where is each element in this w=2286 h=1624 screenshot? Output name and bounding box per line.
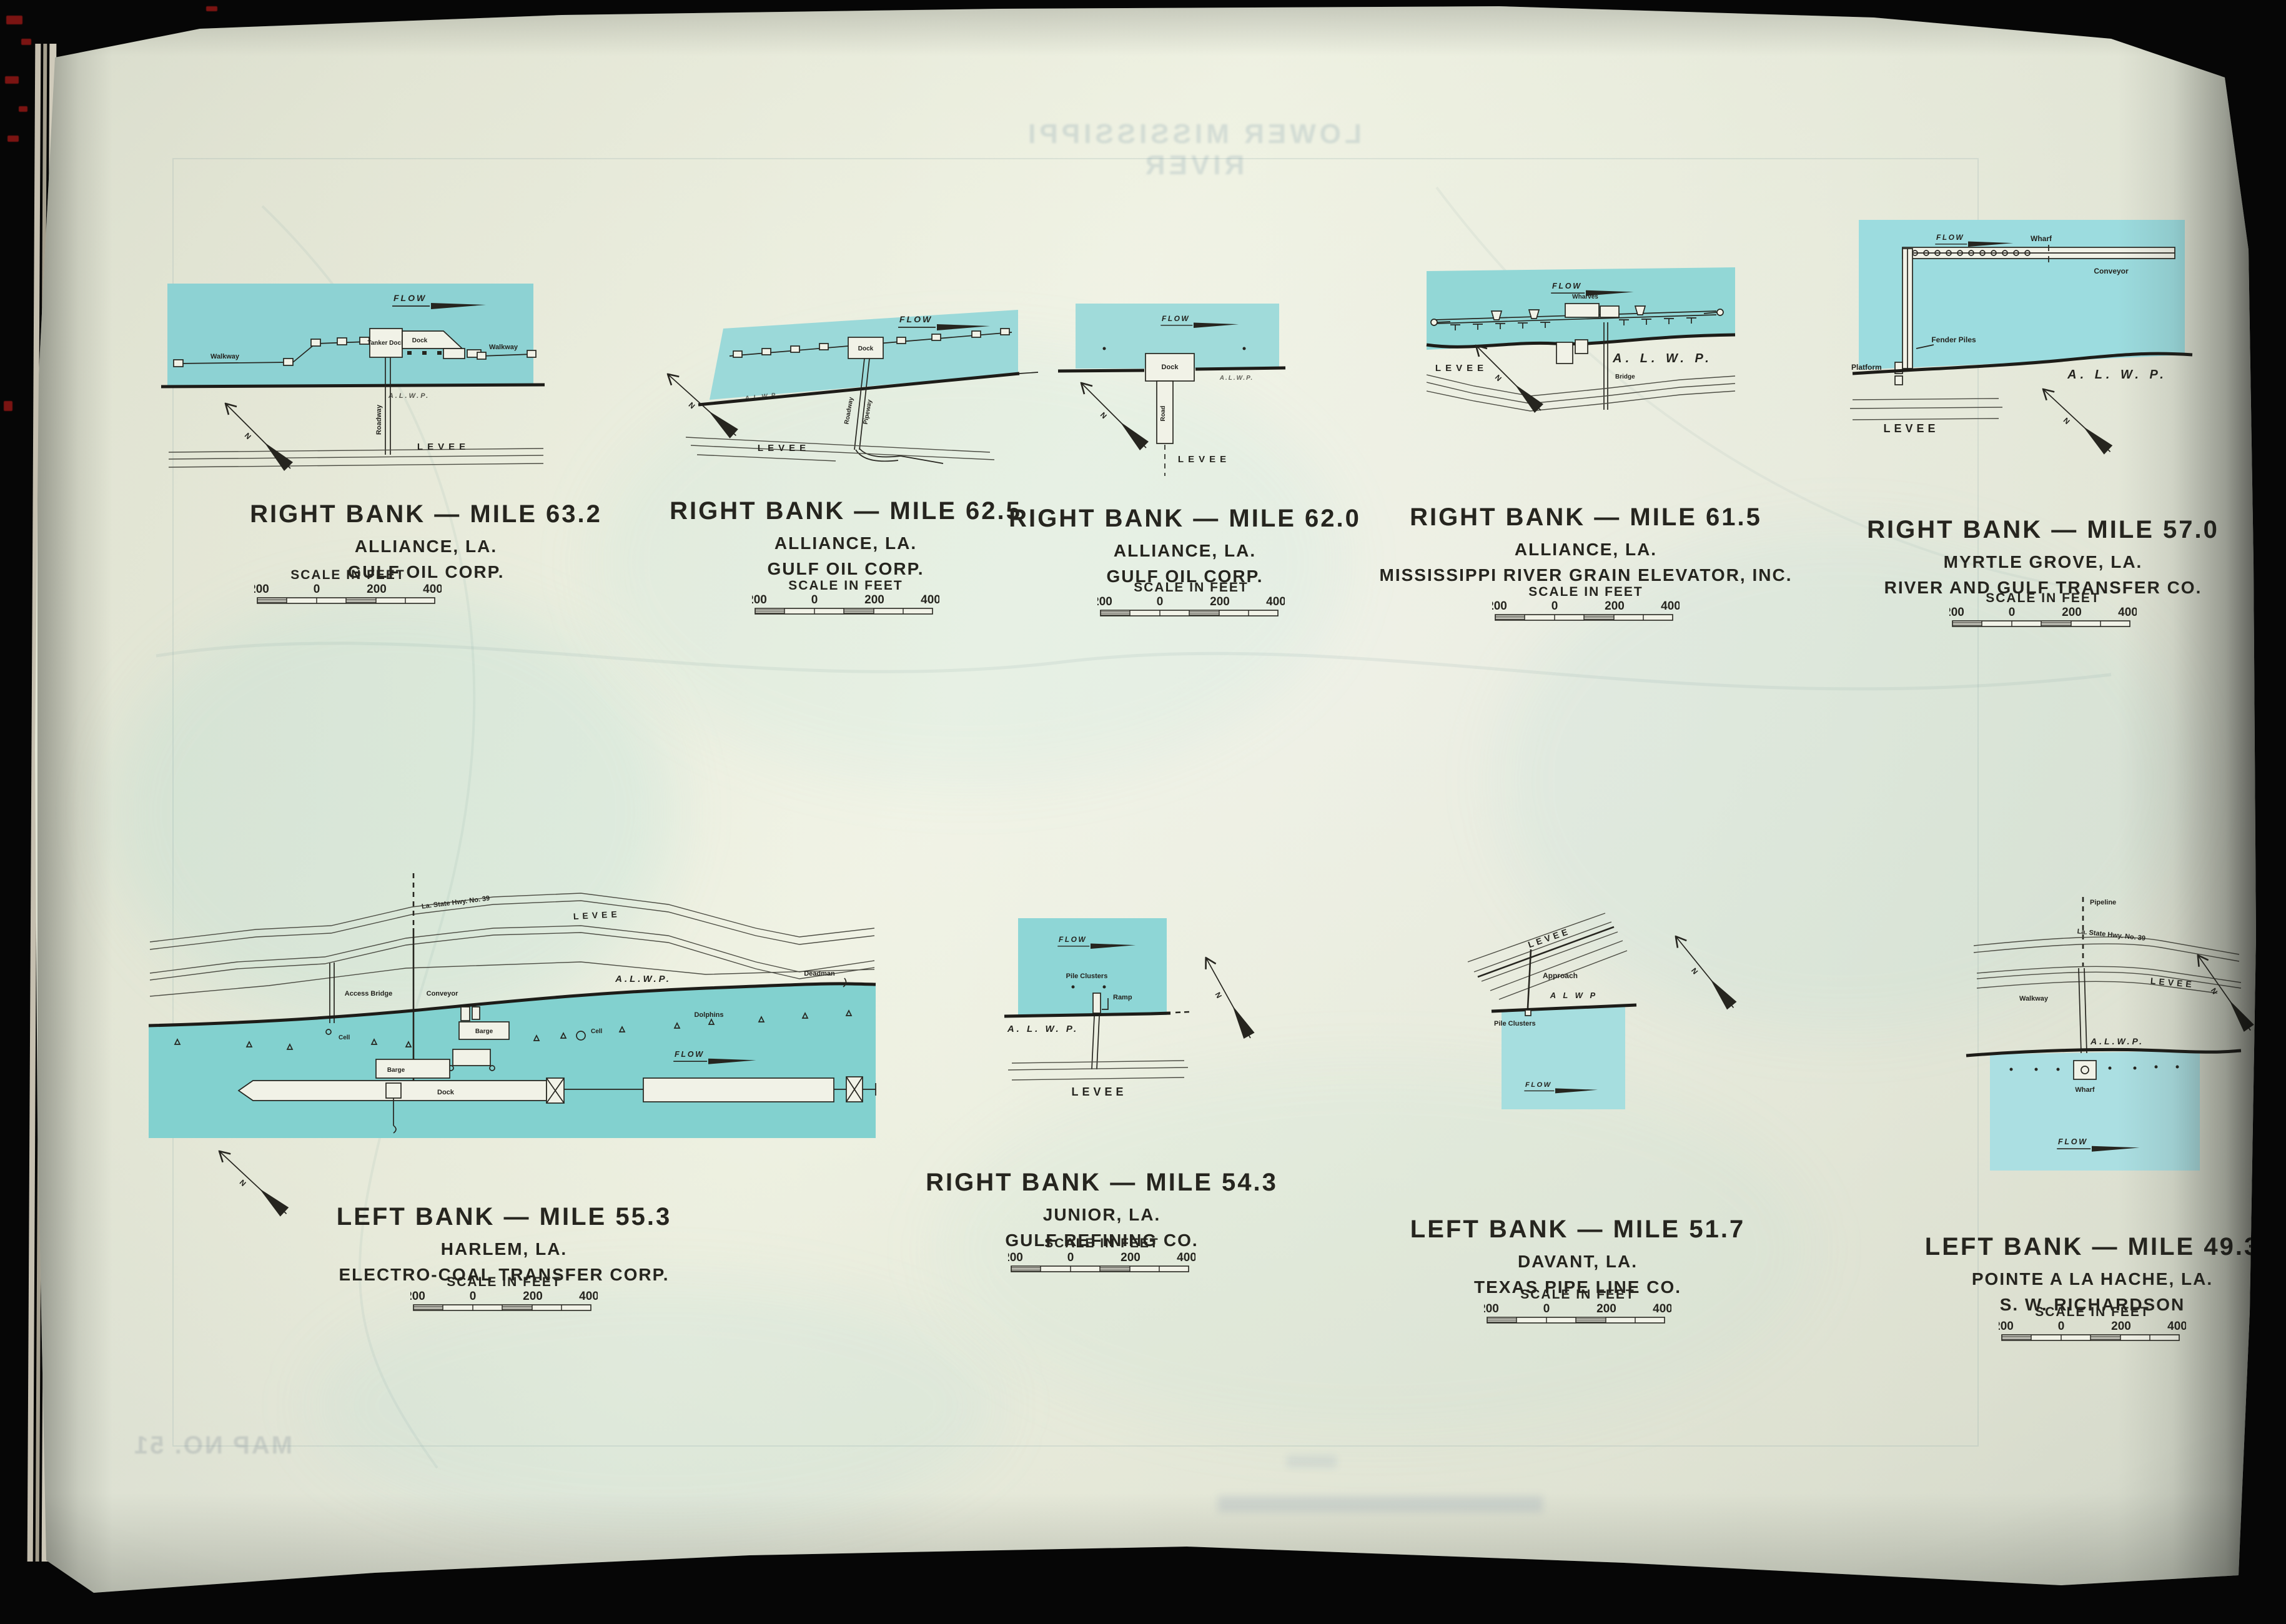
- svg-text:Pipeline: Pipeline: [2090, 899, 2116, 906]
- svg-text:N: N: [1214, 991, 1224, 999]
- svg-text:200: 200: [1999, 1321, 2014, 1333]
- svg-text:Wharf: Wharf: [2031, 234, 2052, 243]
- scale-bar-graphic: 200 0 200 400: [1492, 601, 1680, 628]
- svg-text:N: N: [1690, 966, 1700, 976]
- facility-map-mile-61-5: FLOW Wharves Bridge: [1418, 262, 1818, 456]
- svg-text:La. State Hwy. No. 39: La. State Hwy. No. 39: [421, 894, 490, 910]
- svg-text:FLOW: FLOW: [1936, 233, 1964, 242]
- facility-panel-mile-61-5: FLOW Wharves Bridge: [1418, 262, 1818, 650]
- scale-bar: SCALE IN FEET 200 0 200 400: [1949, 590, 2137, 638]
- svg-text:0: 0: [1543, 1304, 1550, 1315]
- svg-text:A. L. W. P.: A. L. W. P.: [1007, 1024, 1079, 1034]
- page-curl-shadow: [2117, 0, 2256, 1624]
- svg-text:FLOW: FLOW: [1162, 314, 1190, 323]
- svg-text:Roadway: Roadway: [843, 397, 855, 425]
- svg-text:Pile Clusters: Pile Clusters: [1066, 973, 1108, 980]
- facility-panel-mile-62-0: FLOW Dock A.L.W.P. Road LEVEE N: [1037, 287, 1387, 643]
- svg-text:0: 0: [1157, 597, 1164, 608]
- svg-text:0: 0: [1067, 1252, 1074, 1264]
- svg-text:Tanker Dock: Tanker Dock: [367, 340, 405, 347]
- svg-text:N: N: [238, 1178, 248, 1188]
- scale-bar-graphic: 200 0 200 400: [254, 584, 442, 611]
- facility-panel-mile-51-7: LEVEE Approach A L W P Pile Clusters FLO…: [1455, 899, 1780, 1355]
- svg-text:LEVEE: LEVEE: [573, 909, 621, 921]
- svg-text:FLOW: FLOW: [1525, 1081, 1552, 1089]
- svg-text:200: 200: [1008, 1252, 1023, 1264]
- svg-text:N: N: [1099, 410, 1109, 420]
- place-name: ALLIANCE, LA.: [250, 536, 602, 557]
- svg-text:A.L.W.P.: A.L.W.P.: [388, 392, 430, 400]
- panel-title: LEFT BANK — MILE 51.7 DAVANT, LA. TEXAS …: [1410, 1215, 1745, 1297]
- svg-text:200: 200: [864, 595, 884, 607]
- svg-text:Pipeway: Pipeway: [863, 399, 874, 425]
- svg-text:N: N: [1493, 373, 1503, 383]
- facility-map-mile-62-0: FLOW Dock A.L.W.P. Road LEVEE N: [1037, 287, 1387, 493]
- north-arrow-icon: N: [1081, 382, 1149, 450]
- north-arrow-icon: N: [219, 1148, 289, 1219]
- svg-text:200: 200: [1949, 607, 1964, 619]
- facility-panel-mile-63-2: FLOW Walkway Tanker Dock Dock Walkway: [150, 269, 587, 631]
- svg-text:400: 400: [921, 595, 939, 607]
- scale-bar-graphic: 200 0 200 400: [1008, 1252, 1195, 1280]
- facility-map-mile-63-2: FLOW Walkway Tanker Dock Dock Walkway: [150, 269, 587, 493]
- svg-text:Walkway: Walkway: [210, 353, 240, 360]
- scale-bar: SCALE IN FEET 200 0 200 400: [1492, 584, 1680, 631]
- facility-panel-mile-54-3: FLOW Pile Clusters Ramp A. L. W. P. LEVE…: [999, 906, 1262, 1305]
- panel-title: RIGHT BANK — MILE 62.0 ALLIANCE, LA. GUL…: [1009, 504, 1361, 587]
- svg-text:N: N: [2062, 416, 2072, 426]
- scale-bar: SCALE IN FEET 200 0 200 400: [254, 567, 442, 615]
- svg-text:Wharves: Wharves: [1572, 294, 1598, 300]
- facility-map-mile-51-7: LEVEE Approach A L W P Pile Clusters FLO…: [1455, 899, 1780, 1162]
- svg-text:Dock: Dock: [858, 345, 874, 352]
- panel-title: LEFT BANK — MILE 55.3 HARLEM, LA. ELECTR…: [337, 1202, 671, 1285]
- svg-text:0: 0: [470, 1291, 477, 1303]
- svg-text:Walkway: Walkway: [2019, 995, 2049, 1003]
- svg-text:FLOW: FLOW: [2058, 1137, 2088, 1146]
- svg-text:200: 200: [1492, 601, 1507, 613]
- place-name: ALLIANCE, LA.: [670, 533, 1022, 554]
- scale-bar-graphic: 200 0 200 400: [1097, 597, 1285, 624]
- svg-text:A.L.W.P.: A.L.W.P.: [615, 974, 671, 984]
- svg-text:200: 200: [1097, 597, 1112, 608]
- svg-text:Platform: Platform: [1851, 363, 1882, 372]
- red-edge-mark: [4, 401, 12, 411]
- bleed-river-title: LOWER MISSISSIPPI RIVER: [974, 119, 1412, 181]
- svg-text:0: 0: [2009, 607, 2016, 619]
- svg-text:0: 0: [1551, 601, 1558, 613]
- scale-bar: SCALE IN FEET 200 0 200 400: [410, 1274, 598, 1322]
- company-name: GULF OIL CORP.: [670, 558, 1022, 580]
- bank-mile-heading: RIGHT BANK — MILE 63.2: [250, 500, 602, 528]
- facility-map-mile-54-3: FLOW Pile Clusters Ramp A. L. W. P. LEVE…: [999, 906, 1262, 1112]
- svg-text:400: 400: [1653, 1304, 1671, 1315]
- svg-text:200: 200: [367, 584, 387, 596]
- svg-text:400: 400: [579, 1291, 598, 1303]
- bank-mile-heading: RIGHT BANK — MILE 62.5: [670, 497, 1022, 525]
- bank-mile-heading: LEFT BANK — MILE 51.7: [1410, 1215, 1745, 1244]
- svg-text:N: N: [243, 431, 253, 441]
- svg-text:Conveyor: Conveyor: [427, 990, 458, 998]
- place-name: ALLIANCE, LA.: [1380, 539, 1793, 560]
- page-shading: [0, 1493, 2286, 1624]
- svg-text:LEVEE: LEVEE: [1526, 926, 1571, 949]
- svg-text:Road: Road: [1160, 406, 1167, 422]
- svg-text:200: 200: [1605, 601, 1625, 613]
- red-edge-mark: [5, 76, 19, 84]
- svg-text:400: 400: [423, 584, 442, 596]
- svg-text:FLOW: FLOW: [1552, 282, 1582, 290]
- svg-text:LEVEE: LEVEE: [1435, 363, 1488, 374]
- scale-bar-graphic: 200 0 200 400: [1484, 1304, 1671, 1331]
- svg-text:LEVEE: LEVEE: [758, 443, 810, 453]
- facility-map-mile-55-3: La. State Hwy. No. 39 LEVEE Access Bridg…: [144, 868, 881, 1230]
- svg-text:200: 200: [523, 1291, 543, 1303]
- scale-bar: SCALE IN FEET 200 0 200 400: [1097, 580, 1285, 627]
- svg-text:Dock: Dock: [437, 1089, 455, 1096]
- svg-text:0: 0: [2058, 1321, 2065, 1333]
- svg-text:200: 200: [1596, 1304, 1616, 1315]
- svg-text:Walkway: Walkway: [489, 344, 518, 351]
- svg-text:FLOW: FLOW: [675, 1050, 705, 1059]
- facility-panel-mile-55-3: La. State Hwy. No. 39 LEVEE Access Bridg…: [144, 868, 881, 1343]
- scale-bar: SCALE IN FEET 200 0 200 400: [1484, 1287, 1671, 1334]
- scale-bar: SCALE IN FEET 200 0 200 400: [1008, 1235, 1195, 1283]
- svg-text:Dock: Dock: [412, 337, 428, 344]
- svg-text:Bridge: Bridge: [1615, 374, 1635, 380]
- svg-text:LEVEE: LEVEE: [1883, 422, 1939, 435]
- svg-text:FLOW: FLOW: [899, 314, 933, 324]
- svg-text:Dolphins: Dolphins: [694, 1011, 723, 1019]
- svg-text:Dock: Dock: [1162, 364, 1179, 371]
- bleed-map-number: MAP NO. 51: [106, 1432, 319, 1460]
- red-edge-mark: [21, 39, 31, 45]
- svg-text:200: 200: [752, 595, 767, 607]
- svg-text:FLOW: FLOW: [1059, 935, 1087, 944]
- svg-text:200: 200: [1121, 1252, 1141, 1264]
- svg-text:Access Bridge: Access Bridge: [345, 990, 392, 998]
- bank-mile-heading: RIGHT BANK — MILE 62.0: [1009, 504, 1361, 533]
- red-edge-mark: [206, 6, 217, 11]
- scale-bar-graphic: 200 0 200 400: [752, 595, 939, 622]
- bank-mile-heading: LEFT BANK — MILE 55.3: [337, 1202, 671, 1231]
- red-edge-mark: [19, 106, 27, 112]
- svg-text:Ramp: Ramp: [1113, 994, 1132, 1001]
- svg-text:Fender Piles: Fender Piles: [1931, 335, 1976, 344]
- svg-text:A L W P: A L W P: [1550, 991, 1598, 1000]
- svg-text:400: 400: [1177, 1252, 1195, 1264]
- place-name: HARLEM, LA.: [337, 1239, 671, 1260]
- svg-text:Cell: Cell: [591, 1028, 603, 1035]
- svg-text:400: 400: [1661, 601, 1680, 613]
- svg-text:Approach: Approach: [1543, 971, 1578, 980]
- panel-title: RIGHT BANK — MILE 61.5 ALLIANCE, LA. MIS…: [1380, 503, 1793, 585]
- red-edge-mark: [7, 136, 19, 142]
- north-arrow-icon: N: [1668, 936, 1743, 1011]
- scale-bar: SCALE IN FEET 200 0 200 400: [752, 578, 939, 625]
- place-name: JUNIOR, LA.: [926, 1204, 1278, 1225]
- north-arrow-icon: N: [2042, 386, 2113, 457]
- facility-panel-mile-62-5: FLOW Dock A.L.W.P. Roadway Pipeway: [650, 294, 1049, 643]
- svg-text:Cell: Cell: [339, 1034, 350, 1041]
- svg-text:200: 200: [254, 584, 269, 596]
- svg-text:200: 200: [410, 1291, 425, 1303]
- svg-text:0: 0: [811, 595, 818, 607]
- scale-bar-graphic: 200 0 200 400: [410, 1291, 598, 1319]
- panel-title: RIGHT BANK — MILE 62.5 ALLIANCE, LA. GUL…: [670, 497, 1022, 579]
- scale-bar-graphic: 200 0 200 400: [1949, 607, 2137, 635]
- svg-text:0: 0: [314, 584, 320, 596]
- north-arrow-icon: N: [225, 403, 293, 471]
- atlas-page: LOWER MISSISSIPPI RIVER MAP NO. 51 FLOW …: [0, 0, 2286, 1624]
- facility-map-mile-62-5: FLOW Dock A.L.W.P. Roadway Pipeway: [650, 294, 1049, 500]
- svg-text:200: 200: [1484, 1304, 1499, 1315]
- company-name: MISSISSIPPI RIVER GRAIN ELEVATOR, INC.: [1380, 565, 1793, 586]
- svg-text:LEVEE: LEVEE: [1178, 454, 1230, 465]
- bank-mile-heading: RIGHT BANK — MILE 61.5: [1380, 503, 1793, 532]
- bleed-caption-smudge: [1287, 1455, 1337, 1468]
- red-edge-mark: [6, 16, 22, 24]
- svg-text:N: N: [687, 400, 697, 410]
- svg-text:Wharf: Wharf: [2075, 1086, 2095, 1094]
- place-name: DAVANT, LA.: [1410, 1251, 1745, 1272]
- svg-text:FLOW: FLOW: [393, 293, 427, 303]
- svg-text:Barge: Barge: [475, 1028, 493, 1035]
- svg-text:Roadway: Roadway: [375, 404, 383, 435]
- spine-shadow: [37, 0, 112, 1624]
- svg-text:A. L. W. P.: A. L. W. P.: [1612, 352, 1713, 365]
- svg-text:200: 200: [2062, 607, 2082, 619]
- bank-mile-heading: RIGHT BANK — MILE 54.3: [926, 1168, 1278, 1197]
- svg-text:Barge: Barge: [387, 1067, 405, 1074]
- svg-text:200: 200: [1210, 597, 1230, 608]
- svg-text:LEVEE: LEVEE: [417, 442, 470, 452]
- svg-text:Deadman: Deadman: [804, 970, 835, 978]
- svg-text:LEVEE: LEVEE: [1071, 1086, 1127, 1098]
- svg-text:Pile Clusters: Pile Clusters: [1494, 1020, 1536, 1027]
- svg-text:400: 400: [1266, 597, 1285, 608]
- photo-of-atlas-page: LOWER MISSISSIPPI RIVER MAP NO. 51 FLOW …: [0, 0, 2286, 1624]
- place-name: ALLIANCE, LA.: [1009, 540, 1361, 562]
- north-arrow-icon: N: [1187, 957, 1262, 1041]
- svg-text:A.L.W.P.: A.L.W.P.: [1219, 375, 1254, 382]
